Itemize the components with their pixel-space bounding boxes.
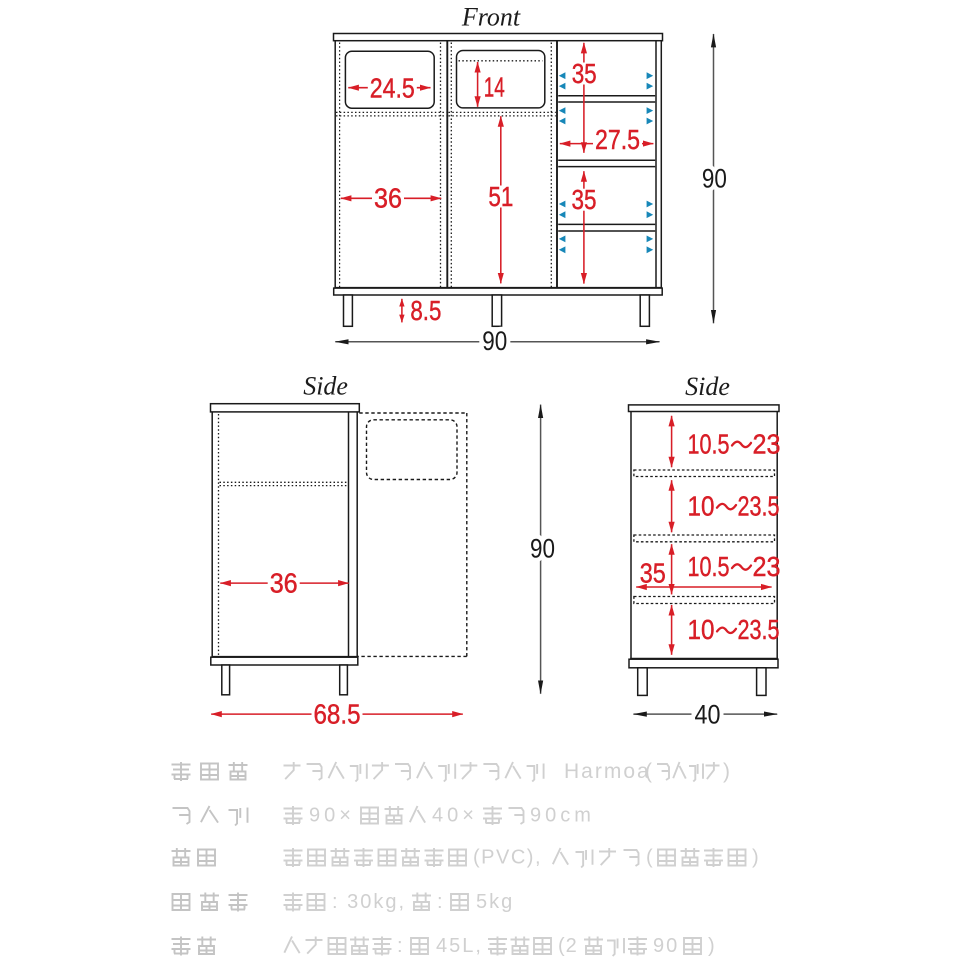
svg-text:90×: 90× <box>309 805 355 827</box>
svg-text:(: ( <box>645 760 654 783</box>
svg-text:90: 90 <box>702 163 727 193</box>
svg-text::: : <box>437 891 445 913</box>
svg-text:): ) <box>708 935 717 957</box>
svg-text:45L,: 45L, <box>436 935 483 957</box>
svg-text:5kg: 5kg <box>476 891 514 913</box>
svg-text:90: 90 <box>653 935 679 957</box>
svg-text:10: 10 <box>688 614 715 645</box>
svg-text:8.5: 8.5 <box>410 295 441 326</box>
svg-text:35: 35 <box>572 58 597 89</box>
svg-text:Harmoa: Harmoa <box>564 760 651 783</box>
svg-text:40×: 40× <box>432 805 478 827</box>
svg-text:): ) <box>723 760 732 783</box>
svg-text:(: ( <box>646 847 655 869</box>
svg-text:90: 90 <box>530 533 555 563</box>
svg-text:23.5: 23.5 <box>738 614 780 645</box>
svg-text:: 30kg,: : 30kg, <box>332 891 406 913</box>
svg-text:): ) <box>752 847 761 869</box>
svg-text:Side: Side <box>685 372 730 401</box>
svg-text:Front: Front <box>461 3 521 32</box>
svg-text:90: 90 <box>482 326 507 356</box>
svg-text:35: 35 <box>640 558 666 589</box>
svg-text:(PVC),: (PVC), <box>473 847 542 869</box>
svg-text:35: 35 <box>572 184 597 215</box>
svg-text:51: 51 <box>488 181 513 212</box>
svg-text:Side: Side <box>303 372 348 401</box>
svg-text:36: 36 <box>270 567 298 598</box>
svg-text:10: 10 <box>688 491 715 522</box>
svg-text:23: 23 <box>753 428 781 459</box>
svg-text:10.5: 10.5 <box>688 428 730 459</box>
svg-text:(2: (2 <box>558 935 578 957</box>
svg-text::: : <box>397 935 405 957</box>
svg-text:14: 14 <box>484 72 505 103</box>
svg-text:24.5: 24.5 <box>370 73 415 104</box>
svg-text:23: 23 <box>753 551 781 582</box>
svg-text:40: 40 <box>695 699 721 729</box>
svg-text:68.5: 68.5 <box>314 698 361 729</box>
svg-text:27.5: 27.5 <box>595 124 640 155</box>
svg-text:90cm: 90cm <box>530 805 595 827</box>
svg-text:23.5: 23.5 <box>738 491 780 522</box>
svg-text:10.5: 10.5 <box>688 551 730 582</box>
svg-text:36: 36 <box>374 182 402 213</box>
